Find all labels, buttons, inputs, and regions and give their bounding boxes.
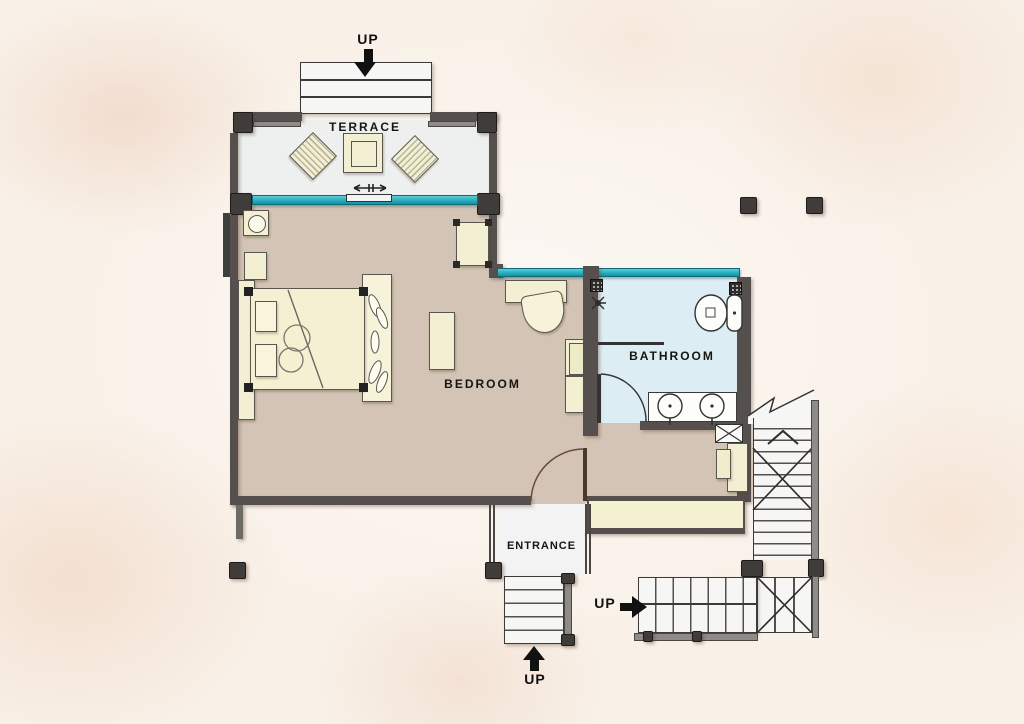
terrace-column-nw <box>233 112 253 133</box>
terrace-column-se <box>477 193 500 215</box>
entrance-stairs-rail <box>564 576 572 642</box>
south-wall-stub <box>236 505 243 539</box>
entrance-stairs <box>504 576 564 644</box>
side-table <box>244 252 267 280</box>
terrace-east-wall <box>489 133 497 195</box>
north-window-wall <box>497 268 740 277</box>
terrace-rail-left <box>253 121 301 127</box>
sliding-door-icon <box>350 182 390 194</box>
floor-plan: UP TERRACE <box>0 0 1024 724</box>
armchair-post <box>485 261 492 268</box>
side-stairs-east-rail <box>811 400 819 574</box>
bathroom-door-swing <box>601 374 647 423</box>
armchair-post <box>485 219 492 226</box>
entrance-label: ENTRANCE <box>494 540 589 552</box>
entry-door-swing <box>530 446 585 503</box>
bed-cushion <box>255 344 277 377</box>
entrance-sw-column <box>485 562 502 579</box>
nightstand-lamp <box>248 215 266 233</box>
column-marker <box>590 279 603 292</box>
armchair-post <box>453 261 460 268</box>
entrance-east-window <box>585 504 591 574</box>
site-column <box>229 562 246 579</box>
bedroom-label: BEDROOM <box>430 377 535 391</box>
armchair <box>456 222 489 266</box>
terrace-stairs-tread <box>301 96 431 98</box>
bed-post <box>359 287 368 296</box>
hallway-floor <box>583 423 737 503</box>
stair-landing-block <box>808 559 824 577</box>
lower-stairs <box>638 577 757 633</box>
rail-cap <box>643 631 653 642</box>
terrace-label: TERRACE <box>315 120 415 134</box>
toilet-icon <box>694 291 746 335</box>
site-column <box>806 197 823 214</box>
bed-post <box>244 287 253 296</box>
lower-stairs-midline <box>638 603 757 605</box>
terrace-up-label: UP <box>348 31 388 47</box>
side-stairs-up-arrow-icon <box>766 428 800 446</box>
side-up-label: UP <box>590 595 620 611</box>
closet-panel <box>569 343 584 375</box>
hall-cabinet-inner <box>716 449 731 479</box>
terrace-rail-right <box>428 121 476 127</box>
sliding-door-panel <box>346 194 392 202</box>
bed-cushion <box>255 301 277 332</box>
side-stairs-east-rail-low <box>812 576 819 638</box>
terrace-west-wall <box>230 133 238 195</box>
west-window-detail <box>223 213 230 277</box>
armchair-post <box>453 219 460 226</box>
landing-cross <box>757 577 812 633</box>
sink-icon <box>648 392 737 422</box>
terrace-stairs-tread <box>301 79 431 81</box>
bed-post <box>244 383 253 392</box>
entrance-up-label: UP <box>515 671 555 687</box>
stair-landing-block <box>741 560 763 577</box>
duct-shaft-cross <box>715 424 743 443</box>
terrace-column-ne <box>477 112 497 133</box>
rail-cap <box>561 634 575 646</box>
shower-icon <box>590 295 607 312</box>
bathroom-label: BATHROOM <box>612 349 732 363</box>
entrance-west-window <box>489 505 495 562</box>
terrace-table-top <box>351 141 377 167</box>
bench <box>429 312 455 370</box>
side-stairs-cross <box>753 448 812 510</box>
bathroom-half-wall <box>598 342 664 345</box>
rail-cap <box>692 631 702 642</box>
rail-cap <box>561 573 575 584</box>
bedroom-west-wall <box>230 215 238 505</box>
site-column <box>740 197 757 214</box>
bed-post <box>359 383 368 392</box>
bedroom-south-wall <box>230 496 531 505</box>
entry-bench <box>587 496 745 534</box>
